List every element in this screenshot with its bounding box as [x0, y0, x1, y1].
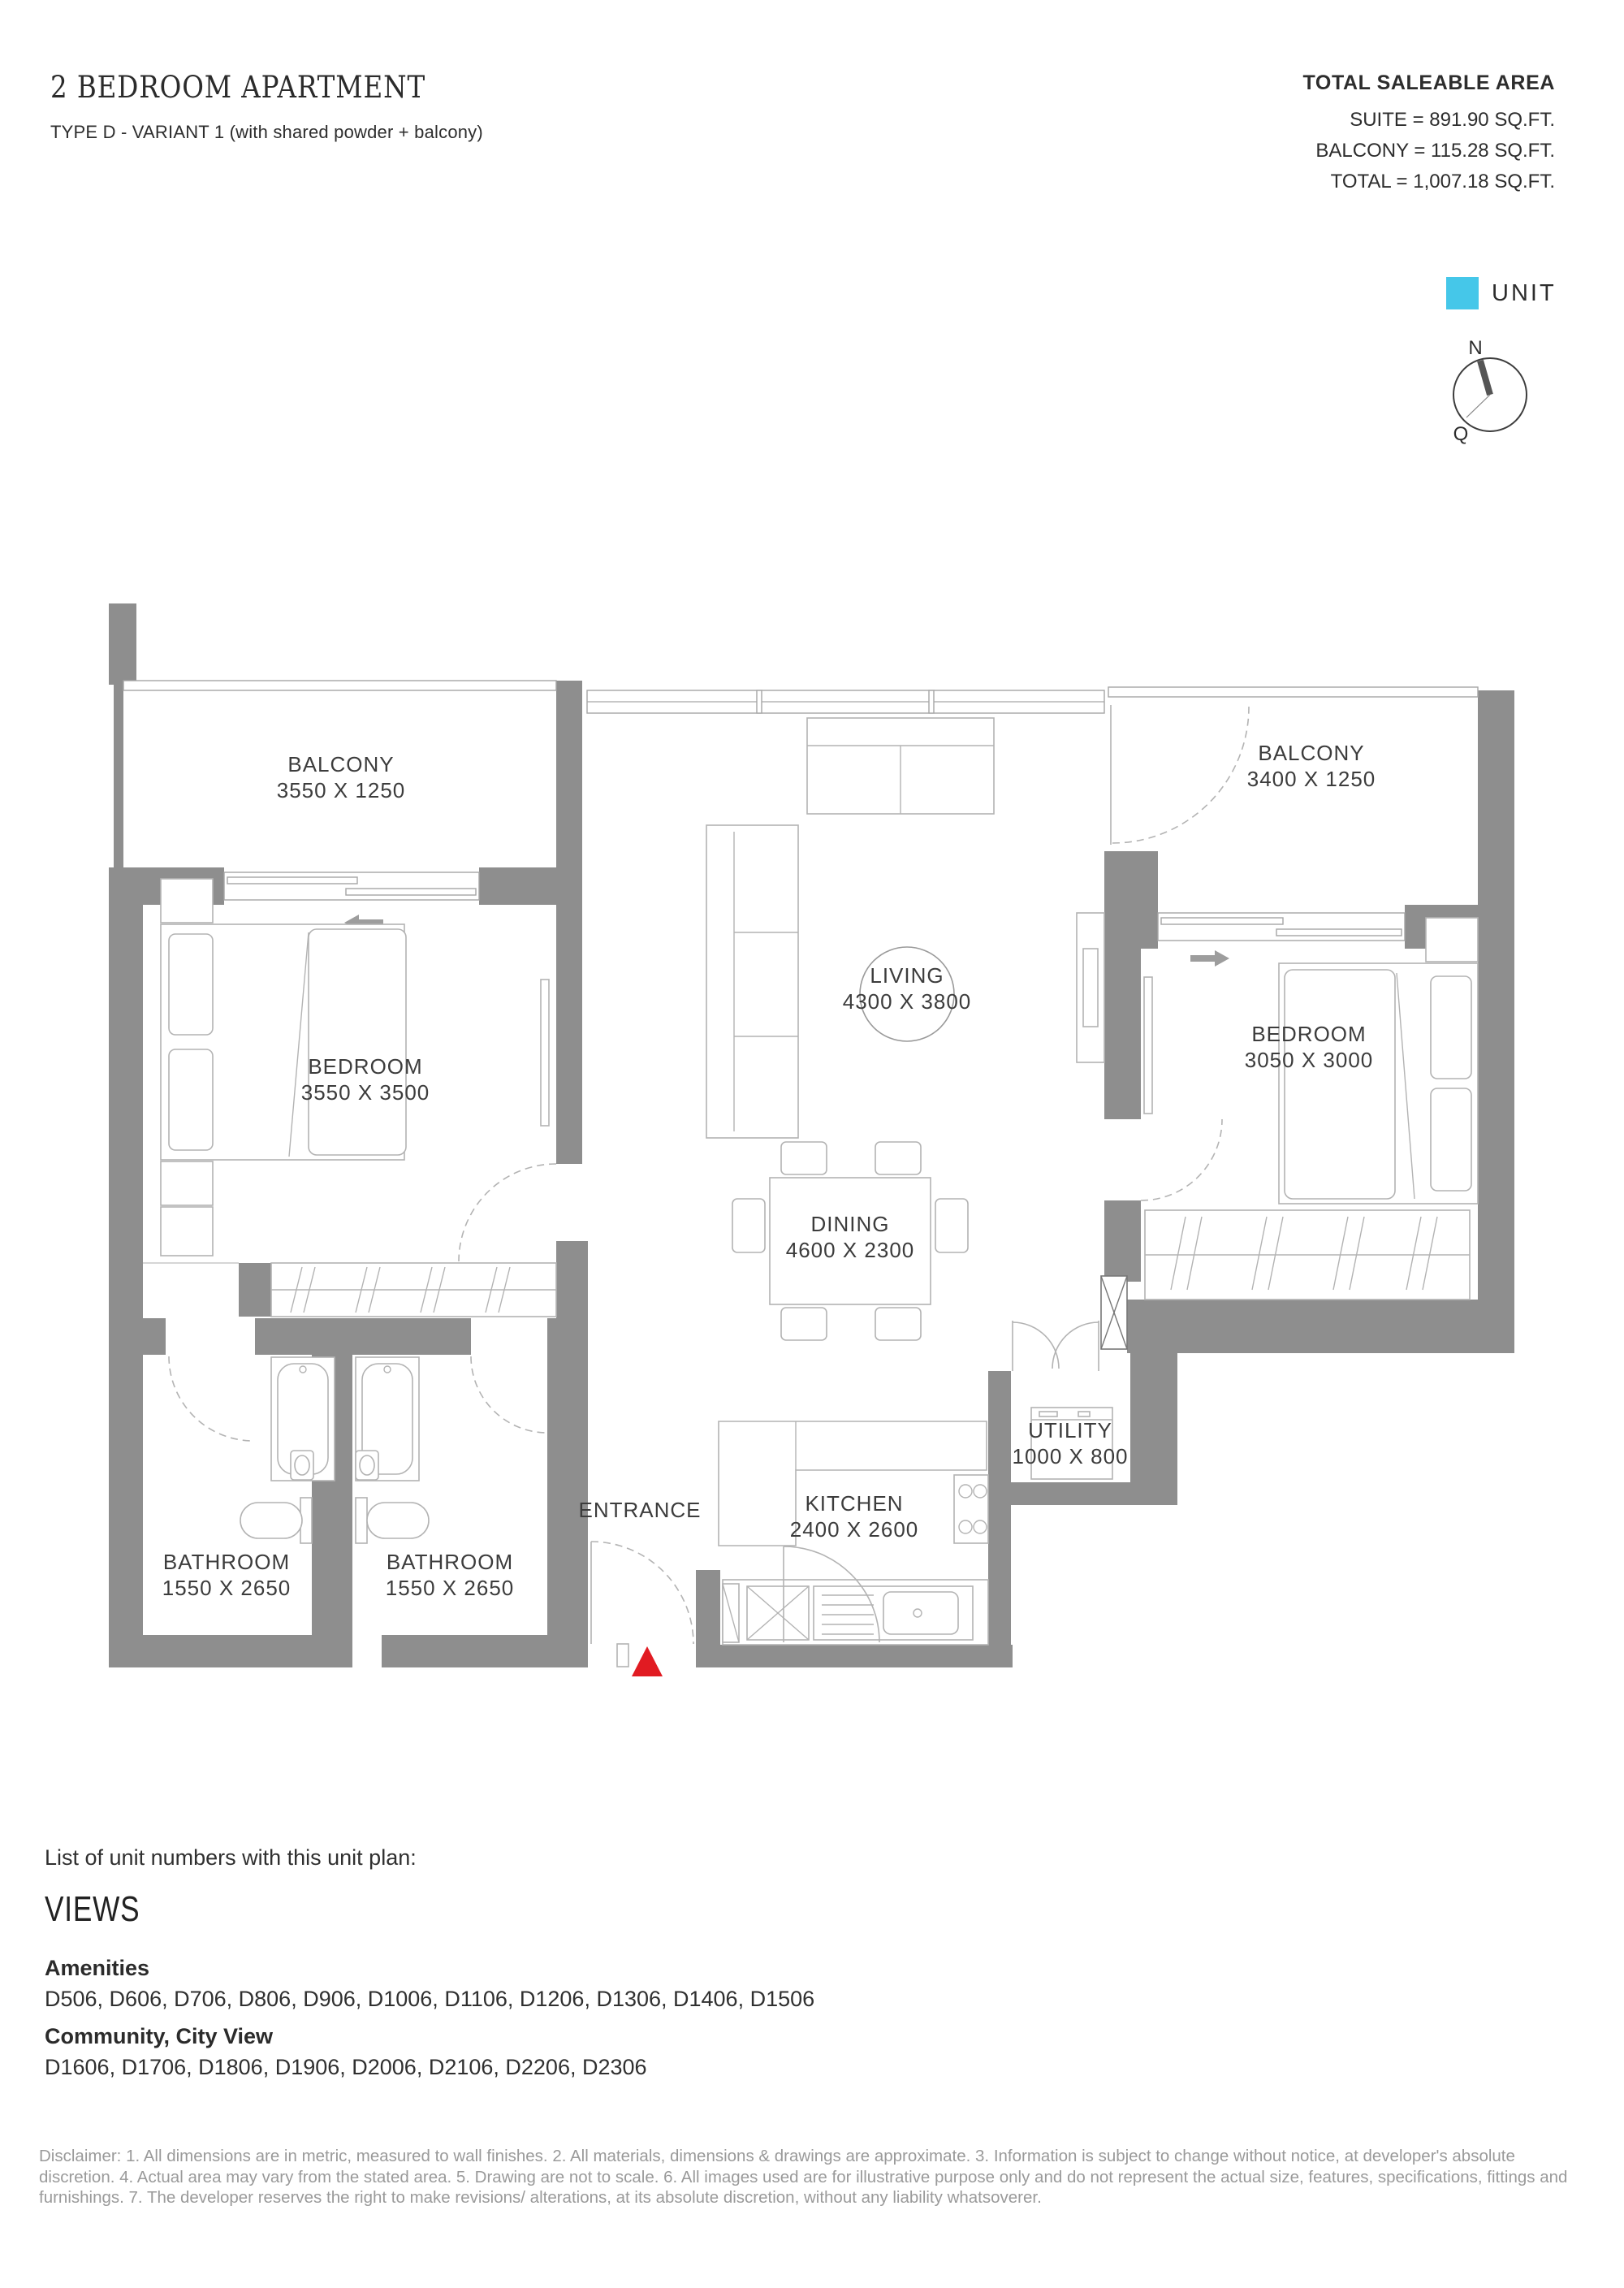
bathroom-2-label: BATHROOM [387, 1550, 513, 1574]
area-balcony: BALCONY = 115.28 SQ.FT. [1303, 136, 1555, 167]
living-dims: 4300 X 3800 [843, 989, 971, 1014]
balcony-2-door-arc [1112, 707, 1249, 843]
area-summary: TOTAL SALEABLE AREA SUITE = 891.90 SQ.FT… [1303, 71, 1555, 197]
balcony-2-dims: 3400 X 1250 [1247, 767, 1376, 791]
balcony-1-dims: 3550 X 1250 [277, 778, 405, 802]
bedroom-1-door-arc [459, 1164, 556, 1261]
compass-q-label: Q [1453, 423, 1469, 445]
bathroom-1-dims: 1550 X 2650 [162, 1576, 291, 1600]
bathroom-1-label: BATHROOM [163, 1550, 290, 1574]
page-title: 2 BEDROOM APARTMENT [50, 70, 425, 105]
kitchen-dims: 2400 X 2600 [790, 1517, 918, 1542]
utility-dims: 1000 X 800 [1012, 1444, 1128, 1468]
living-furniture [706, 718, 1104, 1138]
bathroom-2-fixtures [356, 1357, 429, 1543]
floorplan-sheet: 2 BEDROOM APARTMENT TYPE D - VARIANT 1 (… [0, 0, 1624, 2288]
unit-legend-label: UNIT [1492, 280, 1557, 307]
utility-door-arc-left [1013, 1322, 1059, 1369]
unit-list-intro: List of unit numbers with this unit plan… [45, 1845, 417, 1871]
bathroom-1-door-arc [169, 1356, 253, 1441]
area-summary-heading: TOTAL SALEABLE AREA [1303, 71, 1555, 95]
balcony-1-label: BALCONY [287, 752, 394, 776]
balcony-2-label: BALCONY [1258, 741, 1364, 765]
utility-label: UTILITY [1028, 1418, 1112, 1442]
bedroom-1-dims: 3550 X 3500 [301, 1080, 430, 1105]
entrance-door-arc [591, 1542, 693, 1644]
entrance-label: ENTRANCE [578, 1498, 701, 1522]
unit-group-community-title: Community, City View [45, 2024, 273, 2049]
views-heading: VIEWS [45, 1889, 140, 1930]
bedroom-2-dims: 3050 X 3000 [1245, 1048, 1373, 1072]
arrow-right-icon [1190, 950, 1229, 967]
dining-dims: 4600 X 2300 [786, 1238, 914, 1262]
dining-label: DINING [811, 1212, 890, 1236]
unit-group-community-units: D1606, D1706, D1806, D1906, D2006, D2106… [45, 2055, 647, 2080]
bedroom-2-label: BEDROOM [1251, 1022, 1366, 1046]
bedroom-1-wardrobe [143, 1263, 556, 1317]
bedroom-1-label: BEDROOM [308, 1054, 422, 1079]
compass-north-label: N [1468, 340, 1482, 359]
area-total: TOTAL = 1,007.18 SQ.FT. [1303, 167, 1555, 197]
kitchen-label: KITCHEN [805, 1491, 903, 1516]
bedroom-2-door-arc [1141, 1119, 1222, 1200]
north-arrow-icon: N Q [1436, 340, 1549, 453]
utility-door-arc-right [1052, 1322, 1099, 1369]
area-suite: SUITE = 891.90 SQ.FT. [1303, 105, 1555, 136]
unit-legend: UNIT [1446, 277, 1557, 309]
unit-group-amenities-units: D506, D606, D706, D806, D906, D1006, D11… [45, 1987, 814, 2012]
floorplan-drawing: BALCONY 3550 X 1250 BEDROOM 3550 X 3500 … [97, 599, 1527, 1696]
unit-group-amenities-title: Amenities [45, 1956, 149, 1981]
bathroom-2-dims: 1550 X 2650 [386, 1576, 514, 1600]
windows [123, 681, 1478, 941]
page-subtitle: TYPE D - VARIANT 1 (with shared powder +… [50, 122, 483, 143]
bedroom-2-wardrobe [1145, 1210, 1470, 1300]
bathroom-2-door-arc [471, 1356, 547, 1433]
entrance-marker-icon [632, 1646, 663, 1676]
unit-legend-swatch [1446, 277, 1479, 309]
living-label: LIVING [870, 963, 944, 988]
disclaimer-text: Disclaimer: 1. All dimensions are in met… [39, 2146, 1582, 2208]
